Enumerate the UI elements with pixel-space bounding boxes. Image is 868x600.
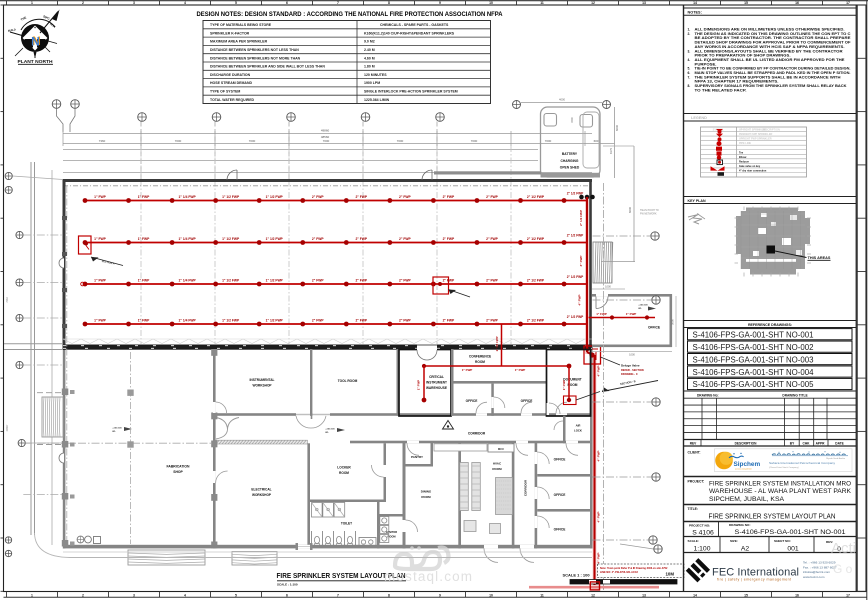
svg-text:7.: 7. (688, 75, 691, 79)
svg-text:DINING: DINING (421, 490, 432, 494)
svg-text:2" FWP: 2" FWP (443, 318, 455, 322)
svg-text:1" 1/2 FWP: 1" 1/2 FWP (222, 278, 240, 282)
svg-text:1" FWP: 1" FWP (138, 278, 150, 282)
svg-text:7000: 7000 (249, 139, 256, 143)
svg-text:2" 1/2 FWP: 2" 1/2 FWP (527, 318, 545, 322)
svg-text:infoksa@fecint.com: infoksa@fecint.com (803, 570, 830, 574)
svg-text:S-4106-FPS-GA-001-SHT NO-002: S-4106-FPS-GA-001-SHT NO-002 (693, 343, 815, 352)
svg-text:7000: 7000 (471, 139, 478, 143)
svg-text:HVAC: HVAC (493, 462, 502, 466)
svg-text:2" FWP: 2" FWP (355, 237, 367, 241)
svg-text:2" 1/2 FWP: 2" 1/2 FWP (527, 195, 545, 199)
svg-text:1500: 1500 (571, 117, 574, 123)
svg-text:SIPCHEM, JUBAIL, KSA: SIPCHEM, JUBAIL, KSA (709, 496, 784, 503)
svg-text:FABRICATION: FABRICATION (167, 465, 190, 469)
svg-text:8: 8 (388, 1, 390, 5)
svg-text:DISTANCE BETWEEN SPRINKLER AND: DISTANCE BETWEEN SPRINKLER AND SIDE WALL… (210, 65, 325, 69)
svg-text:2: 2 (82, 1, 84, 5)
svg-text:17: 17 (846, 593, 850, 597)
svg-text:Acti: Acti (831, 540, 856, 557)
svg-text:Gate valve on key: Gate valve on key (739, 165, 761, 168)
svg-text:OFFICE: OFFICE (554, 528, 566, 532)
svg-text:CONFERENCE: CONFERENCE (469, 355, 491, 359)
svg-text:AIR: AIR (576, 424, 581, 428)
svg-text:KEY PLAN: KEY PLAN (688, 199, 707, 203)
svg-text:2" FWP: 2" FWP (486, 278, 498, 282)
svg-text:1" FWP: 1" FWP (138, 318, 150, 322)
svg-text:Riyada Saudi Arabia: Riyada Saudi Arabia (826, 457, 846, 460)
svg-text:2" FWP: 2" FWP (443, 195, 455, 199)
svg-text:1: 1 (31, 593, 33, 597)
svg-text:S-4106-FPS-GA-001-SHT NO-003: S-4106-FPS-GA-001-SHT NO-003 (693, 355, 815, 364)
svg-text:PROJECT:: PROJECT: (688, 480, 705, 484)
svg-text:2" FWP: 2" FWP (355, 195, 367, 199)
svg-text:+100.100: +100.100 (638, 305, 648, 307)
svg-text:SINGLE INTERLOCK PRE-ACTION SP: SINGLE INTERLOCK PRE-ACTION SPRINKLER SY… (364, 90, 458, 94)
svg-text:10: 10 (489, 1, 493, 5)
svg-text:6: 6 (286, 1, 288, 5)
svg-text:5000: 5000 (671, 319, 675, 325)
svg-text:fire | safety | emergency mana: fire | safety | emergency management (717, 578, 791, 582)
svg-text:THIS AREAS: THIS AREAS (808, 256, 831, 260)
svg-text:2" FWP: 2" FWP (355, 278, 367, 282)
svg-text:2" 1/2 FWP: 2" 1/2 FWP (567, 275, 584, 279)
svg-text:4" dry riser connection: 4" dry riser connection (739, 169, 767, 172)
svg-text:6000: 6000 (628, 207, 632, 213)
svg-text:7000: 7000 (545, 139, 552, 143)
svg-text:CHK: CHK (803, 441, 811, 445)
svg-text:DRAWING TITLE: DRAWING TITLE (782, 394, 807, 398)
svg-text:120 MINUTES: 120 MINUTES (364, 73, 387, 77)
svg-text:5: 5 (235, 1, 237, 5)
svg-text:14: 14 (693, 593, 697, 597)
svg-text:15: 15 (744, 1, 748, 5)
svg-text:SIZE:: SIZE: (730, 539, 738, 543)
svg-text:9: 9 (439, 1, 441, 5)
svg-text:2.40 M: 2.40 M (364, 48, 375, 52)
svg-text:2" FWP: 2" FWP (486, 318, 498, 322)
svg-text:LEGEND: LEGEND (691, 116, 707, 120)
svg-text:4" FWP: 4" FWP (578, 295, 582, 306)
svg-text:001: 001 (787, 546, 799, 553)
svg-text:4000: 4000 (559, 98, 565, 102)
svg-text:MCC: MCC (498, 447, 504, 451)
svg-text:WAREHOUSE - AL WAHA PLANT: WAREHOUSE - AL WAHA PLANT WEST PARK (709, 488, 851, 495)
svg-text:1" 1/4 FWP: 1" 1/4 FWP (179, 237, 197, 241)
svg-text:SHOP: SHOP (173, 470, 183, 474)
svg-text:OFFICE: OFFICE (554, 458, 566, 462)
svg-text:1" FWP: 1" FWP (417, 380, 421, 390)
svg-text:1" 1/2 FWP: 1" 1/2 FWP (266, 318, 284, 322)
svg-text:3: 3 (133, 593, 135, 597)
svg-text:2" FWP: 2" FWP (312, 278, 324, 282)
svg-text:1" 1/4 FWP: 1" 1/4 FWP (179, 278, 197, 282)
svg-text:WORKSHOP: WORKSHOP (252, 493, 272, 497)
svg-text:INSTRUMENT: INSTRUMENT (426, 381, 447, 385)
svg-text:1" FWP: 1" FWP (94, 278, 106, 282)
svg-text:ELECTRICAL: ELECTRICAL (251, 488, 271, 492)
svg-text:49860: 49860 (321, 129, 330, 133)
svg-text:across everywhere: across everywhere (735, 468, 753, 470)
svg-text:ROOM: ROOM (421, 495, 431, 499)
svg-text:1:100: 1:100 (693, 546, 710, 553)
svg-text:N: N (31, 34, 40, 48)
svg-text:DRAWING - C: DRAWING - C (621, 372, 638, 376)
svg-text:5: 5 (235, 593, 237, 597)
svg-text:TITLE:: TITLE: (688, 507, 699, 511)
svg-text:WORKSHOP: WORKSHOP (252, 384, 272, 388)
svg-text:2" 1/2 FWP: 2" 1/2 FWP (527, 278, 545, 282)
svg-text:4" FWP: 4" FWP (597, 366, 601, 377)
svg-text:3: 3 (133, 1, 135, 5)
svg-text:TOOL ROOM: TOOL ROOM (338, 379, 358, 383)
svg-text:SHEET NO:: SHEET NO: (774, 539, 791, 543)
svg-text:16: 16 (795, 1, 799, 5)
svg-text:ROOM: ROOM (475, 360, 485, 364)
svg-text:1" 1/2 FWP: 1" 1/2 FWP (222, 195, 240, 199)
svg-text:PROJECT NO:: PROJECT NO: (689, 524, 710, 528)
svg-text:12: 12 (591, 1, 595, 5)
svg-text:15: 15 (744, 593, 748, 597)
svg-text:K160(K11.2)140 C/UP-RIGHT&PEND: K160(K11.2)140 C/UP-RIGHT&PENDANT SPRINK… (364, 31, 455, 35)
svg-text:TOTAL WATER REQUIRED: TOTAL WATER REQUIRED (210, 98, 255, 102)
svg-text:8.: 8. (688, 84, 691, 88)
svg-text:12: 12 (591, 593, 595, 597)
svg-text:FIRE SPRINKLER SYSTEM LAYOU: FIRE SPRINKLER SYSTEM LAYOUT PLAN (709, 514, 836, 521)
svg-text:2" 1/2 FWP: 2" 1/2 FWP (567, 191, 584, 195)
svg-text:OPEN SHED: OPEN SHED (560, 165, 580, 169)
svg-text:8175: 8175 (609, 148, 613, 154)
svg-text:1" FWP: 1" FWP (562, 380, 566, 390)
svg-text:Tee: Tee (739, 151, 744, 154)
svg-text:2" FWP: 2" FWP (443, 237, 455, 241)
svg-text:Deluge Valve: Deluge Valve (621, 364, 640, 368)
svg-text:1000: 1000 (629, 353, 635, 357)
svg-text:7000: 7000 (397, 139, 404, 143)
svg-text:www.fecint.com: www.fecint.com (803, 575, 825, 579)
svg-text:1" FWP: 1" FWP (138, 237, 150, 241)
svg-text:CRITICAL: CRITICAL (429, 375, 444, 379)
svg-text:2" 1/2 FWP: 2" 1/2 FWP (527, 237, 545, 241)
svg-text:6000: 6000 (615, 125, 619, 131)
svg-text:1" FWP: 1" FWP (626, 312, 637, 316)
svg-text:7: 7 (337, 1, 339, 5)
svg-text:+100.100: +100.100 (112, 428, 122, 430)
svg-text:Elbow: Elbow (739, 156, 746, 159)
svg-text:OFFICE: OFFICE (466, 399, 478, 403)
svg-text:14: 14 (693, 1, 697, 5)
svg-text:1" 1/2 FWP: 1" 1/2 FWP (266, 195, 284, 199)
svg-text:1" FWP: 1" FWP (462, 368, 473, 372)
svg-text:PENDENT FWP SPRINKLER: PENDENT FWP SPRINKLER (739, 133, 772, 136)
svg-text:600: 600 (594, 139, 599, 143)
svg-text:SCALE : 1:100: SCALE : 1:100 (277, 583, 298, 587)
svg-text:13: 13 (642, 1, 646, 5)
svg-text:DESCRIPTION: DESCRIPTION (735, 441, 757, 445)
svg-text:OFFICE: OFFICE (554, 493, 566, 497)
svg-text:TOILET: TOILET (341, 522, 352, 526)
svg-text:7000: 7000 (175, 139, 182, 143)
svg-text:SPRINKLER K-FACTOR: SPRINKLER K-FACTOR (210, 31, 250, 35)
svg-text:17: 17 (846, 1, 850, 5)
svg-text:1" 1/2 FWP: 1" 1/2 FWP (266, 278, 284, 282)
svg-text:1" 1/4 FWP: 1" 1/4 FWP (179, 318, 197, 322)
svg-text:4" FWP: 4" FWP (597, 553, 601, 564)
svg-text:SCALE:: SCALE: (688, 539, 700, 543)
svg-text:7000: 7000 (323, 139, 330, 143)
svg-text:4" FWP: 4" FWP (597, 451, 601, 462)
svg-text:BATTERY: BATTERY (562, 152, 578, 156)
svg-text:REFERENCE DRAWINGS:: REFERENCE DRAWINGS: (748, 323, 792, 327)
svg-text:1225.364 L/MIN: 1225.364 L/MIN (364, 98, 390, 102)
svg-text:Sipchem: Sipchem (734, 461, 761, 468)
svg-text:8: 8 (388, 593, 390, 597)
svg-text:1" 1/4 FWP: 1" 1/4 FWP (179, 195, 197, 199)
svg-text:LINE NO: 4"-FW-4706-331-ACC2: LINE NO: 4"-FW-4706-331-ACC2 (600, 571, 639, 574)
svg-text:S-4106-FPS-GA-001-SHT NO-001: S-4106-FPS-GA-001-SHT NO-001 (735, 529, 846, 536)
svg-text:1" 1/2 FWP: 1" 1/2 FWP (495, 336, 499, 351)
svg-text:9: 9 (439, 593, 441, 597)
svg-text:2" FWP: 2" FWP (399, 195, 411, 199)
svg-text:+100.100: +100.100 (325, 429, 335, 431)
svg-text:4" FWP: 4" FWP (597, 512, 601, 523)
svg-text:Note: Town point Refer P & ID: Note: Town point Refer P & ID Drawing 34… (600, 567, 668, 570)
svg-text:2" FWP: 2" FWP (355, 318, 367, 322)
svg-text:TYPE OF SYSTEM: TYPE OF SYSTEM (210, 90, 240, 94)
svg-text:2" FWP: 2" FWP (312, 318, 324, 322)
svg-text:(Closed Joint Stock Company): (Closed Joint Stock Company) (769, 466, 799, 469)
svg-text:DRAWING NO:: DRAWING NO: (729, 523, 750, 527)
svg-text:S-4106-FPS-GA-001-SHT NO-004: S-4106-FPS-GA-001-SHT NO-004 (693, 368, 815, 377)
svg-text:DATE: DATE (835, 441, 843, 445)
svg-text:2" 1/2 FWP: 2" 1/2 FWP (567, 315, 584, 319)
svg-text:DESIGN NOTES: DESIGN STANDARD: DESIGN NOTES: DESIGN STANDARD : ACCORDIN… (197, 11, 504, 18)
svg-text:39867: 39867 (6, 424, 9, 431)
svg-text:Tel. : +966 13 920 6029: Tel. : +966 13 920 6029 (803, 561, 836, 565)
svg-text:DISTANCE BETWEEN SPRINKLERS NO: DISTANCE BETWEEN SPRINKLERS NOT MORE THA… (210, 56, 301, 60)
svg-text:TO THE RELATED FACP.: TO THE RELATED FACP. (695, 88, 747, 92)
svg-text:11: 11 (540, 593, 544, 597)
svg-text:S 4106: S 4106 (692, 530, 714, 537)
svg-text:2" FWP: 2" FWP (399, 237, 411, 241)
svg-text:2" 1/2 FWP: 2" 1/2 FWP (567, 233, 584, 237)
svg-text:REV: REV (690, 441, 697, 445)
svg-text:SCALE 1 : 100: SCALE 1 : 100 (562, 573, 590, 578)
svg-text:2" FWP: 2" FWP (312, 237, 324, 241)
svg-text:MAXIMUM AREA PER SPRINKLER: MAXIMUM AREA PER SPRINKLER (210, 40, 268, 44)
svg-text:G o: G o (833, 562, 853, 576)
svg-text:1.80 M: 1.80 M (364, 65, 375, 69)
svg-text:INSTRUMENTAL: INSTRUMENTAL (250, 378, 275, 382)
svg-text:DISTANCE BETWEEN SPRINKLERS NO: DISTANCE BETWEEN SPRINKLERS NOT LESS THA… (210, 48, 299, 52)
svg-text:S-4106-FPS-GA-001-SHT NO-005: S-4106-FPS-GA-001-SHT NO-005 (693, 380, 815, 389)
svg-text:UP-RIGHT SPRINKLER: UP-RIGHT SPRINKLER (739, 129, 766, 132)
svg-text:ALL EQUIPMENT SHALL BE UL LIST: ALL EQUIPMENT SHALL BE UL LISTED AND/OR … (695, 58, 846, 62)
svg-text:11: 11 (540, 1, 544, 5)
svg-text:2.: 2. (688, 32, 691, 36)
svg-text:1: 1 (31, 1, 33, 5)
svg-text:OFFICE: OFFICE (521, 399, 533, 403)
svg-text:1" FWP: 1" FWP (138, 195, 150, 199)
svg-text:S-4106-FPS-GA-001-SHT NO-001: S-4106-FPS-GA-001-SHT NO-001 (693, 330, 815, 339)
svg-text:4.60 M: 4.60 M (364, 56, 375, 60)
svg-text:REFER - SECTION: REFER - SECTION (621, 368, 644, 372)
svg-text:DRAWING No:: DRAWING No: (697, 394, 719, 398)
svg-text:10: 10 (489, 593, 493, 597)
svg-text:FW NETWORK: FW NETWORK (640, 213, 657, 216)
svg-text:2" FWP: 2" FWP (399, 318, 411, 322)
svg-text:6: 6 (286, 593, 288, 597)
svg-text:DISCHARGE DURATION: DISCHARGE DURATION (210, 73, 251, 77)
svg-text:OFFICE: OFFICE (648, 326, 661, 330)
svg-text:16: 16 (795, 593, 799, 597)
svg-text:3" FWP: 3" FWP (579, 256, 583, 267)
svg-text:FIRE SPRINKLER SYSTEM INSTA: FIRE SPRINKLER SYSTEM INSTALLATION MRO (709, 481, 851, 488)
svg-text:Reducer: Reducer (739, 160, 749, 163)
svg-text:mostaql.com: mostaql.com (384, 569, 472, 584)
svg-text:PIPE LINE: PIPE LINE (739, 142, 751, 145)
svg-text:1" 1/2 FWP: 1" 1/2 FWP (222, 318, 240, 322)
svg-text:7360: 7360 (99, 139, 106, 143)
svg-text:NOTES:: NOTES: (688, 10, 702, 14)
svg-text:TYPE OF MATERIALS BEING STORE: TYPE OF MATERIALS BEING STORE (210, 23, 272, 27)
svg-text:1000: 1000 (605, 285, 611, 289)
svg-text:3.: 3. (688, 49, 691, 53)
svg-text:CORRIDOR: CORRIDOR (524, 479, 528, 496)
svg-text:TIE-IN POINT TO: TIE-IN POINT TO (640, 209, 659, 212)
svg-text:9.0 M2: 9.0 M2 (364, 40, 375, 44)
svg-text:7: 7 (337, 593, 339, 597)
svg-text:13: 13 (642, 593, 646, 597)
svg-text:HOSE STREAM DEMAND: HOSE STREAM DEMAND (210, 81, 252, 85)
svg-text:UPRIGHT FWP SPRINKLER: UPRIGHT FWP SPRINKLER (739, 138, 772, 141)
svg-text:2" FWP: 2" FWP (312, 195, 324, 199)
svg-text:2" FWP: 2" FWP (486, 195, 498, 199)
svg-text:1900 LPM: 1900 LPM (364, 81, 380, 85)
svg-text:2: 2 (82, 593, 84, 597)
svg-text:Fax. : +966 13 887 6027: Fax. : +966 13 887 6027 (803, 565, 837, 569)
svg-text:LOCKER: LOCKER (337, 466, 351, 470)
svg-text:ROOM: ROOM (492, 467, 502, 471)
svg-text:2" FWP: 2" FWP (486, 237, 498, 241)
svg-text:PANTRY: PANTRY (411, 455, 423, 459)
svg-text:A2: A2 (741, 546, 750, 553)
svg-text:1" FWP: 1" FWP (94, 318, 106, 322)
svg-text:WAREHOUSE: WAREHOUSE (426, 386, 447, 390)
svg-text:DOCUMENT: DOCUMENT (563, 378, 581, 382)
svg-text:2" 1/2 FWP: 2" 1/2 FWP (579, 210, 583, 226)
svg-text:1" FWP: 1" FWP (515, 368, 526, 372)
svg-text:ROOM: ROOM (339, 471, 349, 475)
svg-text:CORRIDOR: CORRIDOR (468, 432, 486, 436)
svg-text:Sahara International Petrochem: Sahara International Petrochemical Compa… (769, 461, 835, 465)
svg-text:10M: 10M (665, 572, 674, 577)
svg-text:2" FWP: 2" FWP (399, 278, 411, 282)
svg-text:1" 1/2 FWP: 1" 1/2 FWP (266, 237, 284, 241)
svg-text:4.: 4. (688, 58, 691, 62)
svg-text:LOCK: LOCK (574, 429, 582, 433)
svg-text:APPR: APPR (816, 441, 826, 445)
svg-text:1" FWP: 1" FWP (596, 312, 607, 316)
svg-text:4: 4 (184, 593, 186, 597)
svg-text:1" FWP: 1" FWP (94, 195, 106, 199)
svg-text:CHEMICALS - SPARE PARTS - GASK: CHEMICALS - SPARE PARTS - GASKETS (380, 23, 449, 27)
svg-text:1" FWP: 1" FWP (94, 237, 106, 241)
svg-text:CHARGING: CHARGING (561, 159, 579, 163)
svg-text:CLIENT:: CLIENT: (688, 451, 701, 455)
svg-text:4: 4 (184, 1, 186, 5)
svg-text:1" 1/2 FWP: 1" 1/2 FWP (222, 237, 240, 241)
svg-text:7360: 7360 (6, 297, 9, 303)
